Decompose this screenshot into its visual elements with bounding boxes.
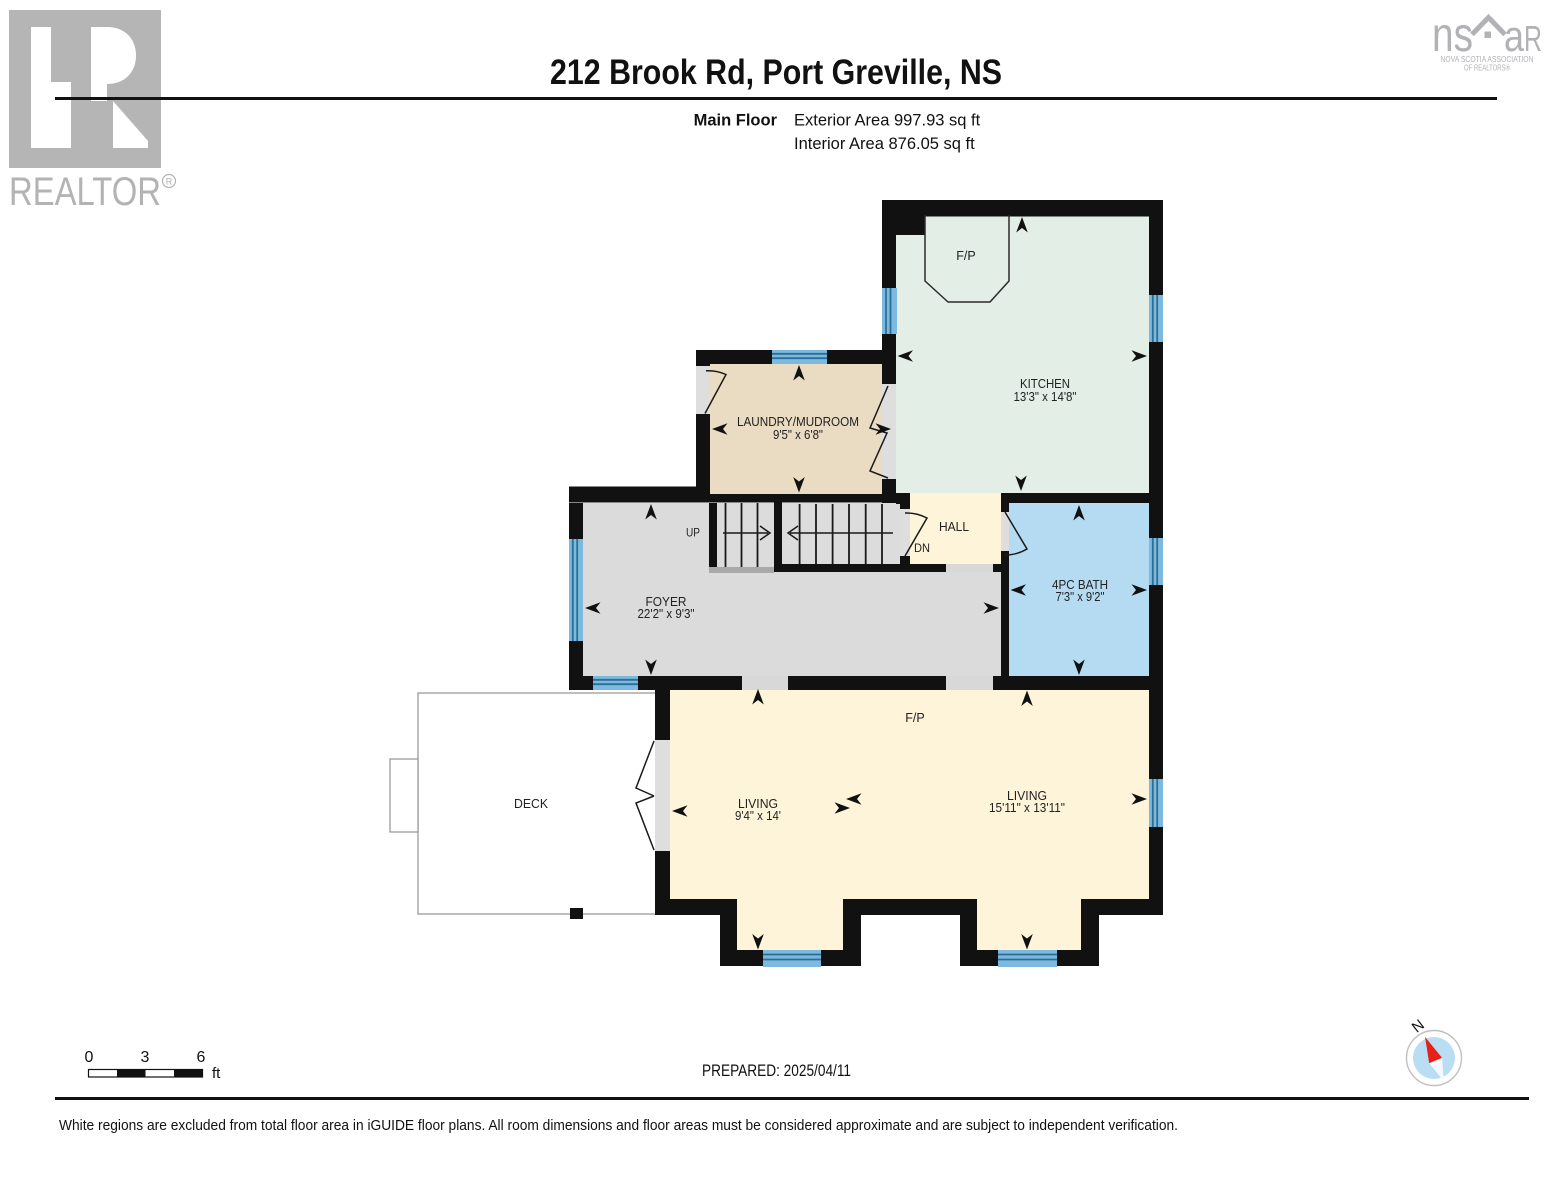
svg-text:LAUNDRY/MUDROOM: LAUNDRY/MUDROOM bbox=[737, 415, 859, 429]
svg-text:212 Brook Rd, Port Greville, N: 212 Brook Rd, Port Greville, NS bbox=[550, 53, 1002, 92]
svg-text:R: R bbox=[1524, 18, 1542, 59]
svg-text:KITCHEN: KITCHEN bbox=[1020, 377, 1070, 391]
svg-text:Main Floor: Main Floor bbox=[694, 112, 778, 130]
svg-text:9'4" x 14': 9'4" x 14' bbox=[735, 809, 781, 823]
svg-text:6: 6 bbox=[197, 1049, 206, 1066]
svg-text:REALTOR: REALTOR bbox=[9, 170, 161, 214]
svg-text:Interior Area 876.05 sq ft: Interior Area 876.05 sq ft bbox=[794, 135, 975, 153]
svg-text:9'5" x 6'8": 9'5" x 6'8" bbox=[773, 428, 823, 442]
svg-text:3: 3 bbox=[141, 1049, 150, 1066]
svg-text:Exterior Area 997.93 sq ft: Exterior Area 997.93 sq ft bbox=[794, 112, 981, 130]
svg-text:HALL: HALL bbox=[939, 520, 969, 534]
svg-text:F/P: F/P bbox=[905, 711, 924, 725]
svg-text:PREPARED: 2025/04/11: PREPARED: 2025/04/11 bbox=[702, 1062, 851, 1080]
svg-text:13'3" x 14'8": 13'3" x 14'8" bbox=[1014, 390, 1077, 404]
svg-text:DN: DN bbox=[914, 543, 930, 555]
svg-text:ft: ft bbox=[212, 1065, 221, 1082]
svg-text:22'2" x 9'3": 22'2" x 9'3" bbox=[638, 607, 695, 621]
svg-text:F/P: F/P bbox=[956, 249, 975, 263]
svg-text:UP: UP bbox=[686, 528, 700, 540]
svg-text:7'3" x 9'2": 7'3" x 9'2" bbox=[1056, 590, 1105, 604]
svg-text:15'11" x 13'11": 15'11" x 13'11" bbox=[989, 801, 1065, 815]
svg-text:a: a bbox=[1504, 12, 1524, 61]
svg-text:OF REALTORS®: OF REALTORS® bbox=[1464, 64, 1510, 73]
svg-text:DECK: DECK bbox=[514, 797, 549, 811]
svg-text:R: R bbox=[166, 177, 173, 187]
svg-text:0: 0 bbox=[85, 1049, 94, 1066]
svg-text:White regions are excluded fro: White regions are excluded from total fl… bbox=[59, 1117, 1178, 1134]
